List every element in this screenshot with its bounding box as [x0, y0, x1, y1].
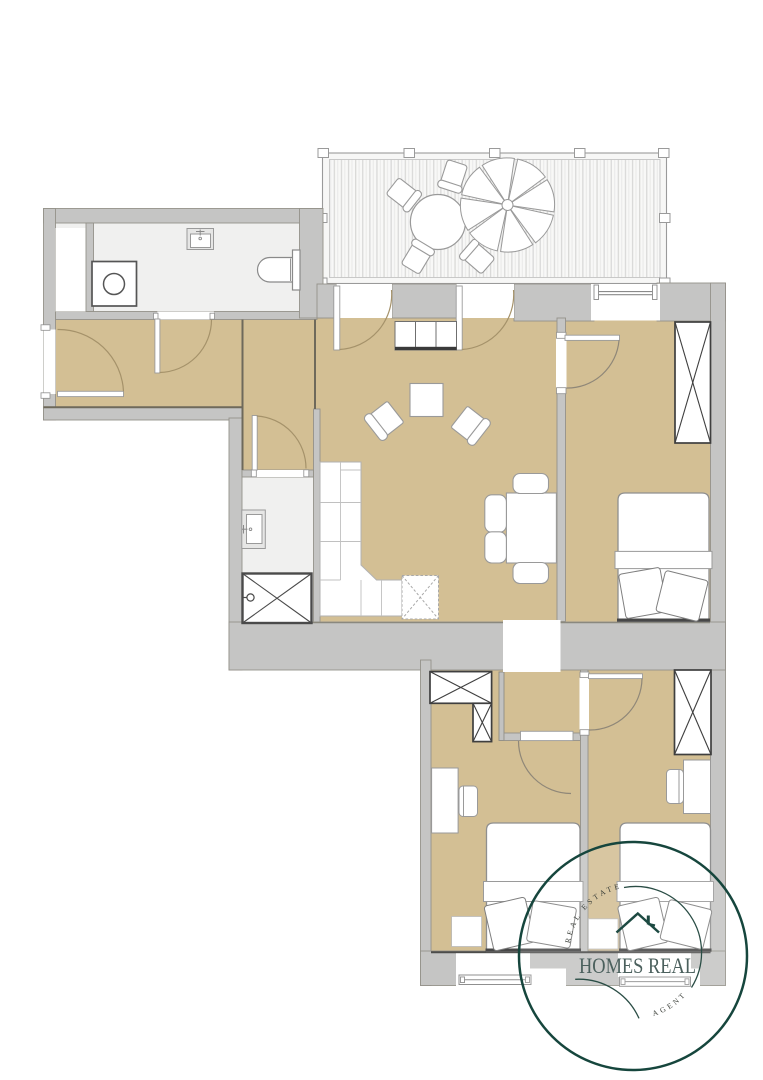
svg-text:HOMES REAL: HOMES REAL	[579, 953, 696, 978]
